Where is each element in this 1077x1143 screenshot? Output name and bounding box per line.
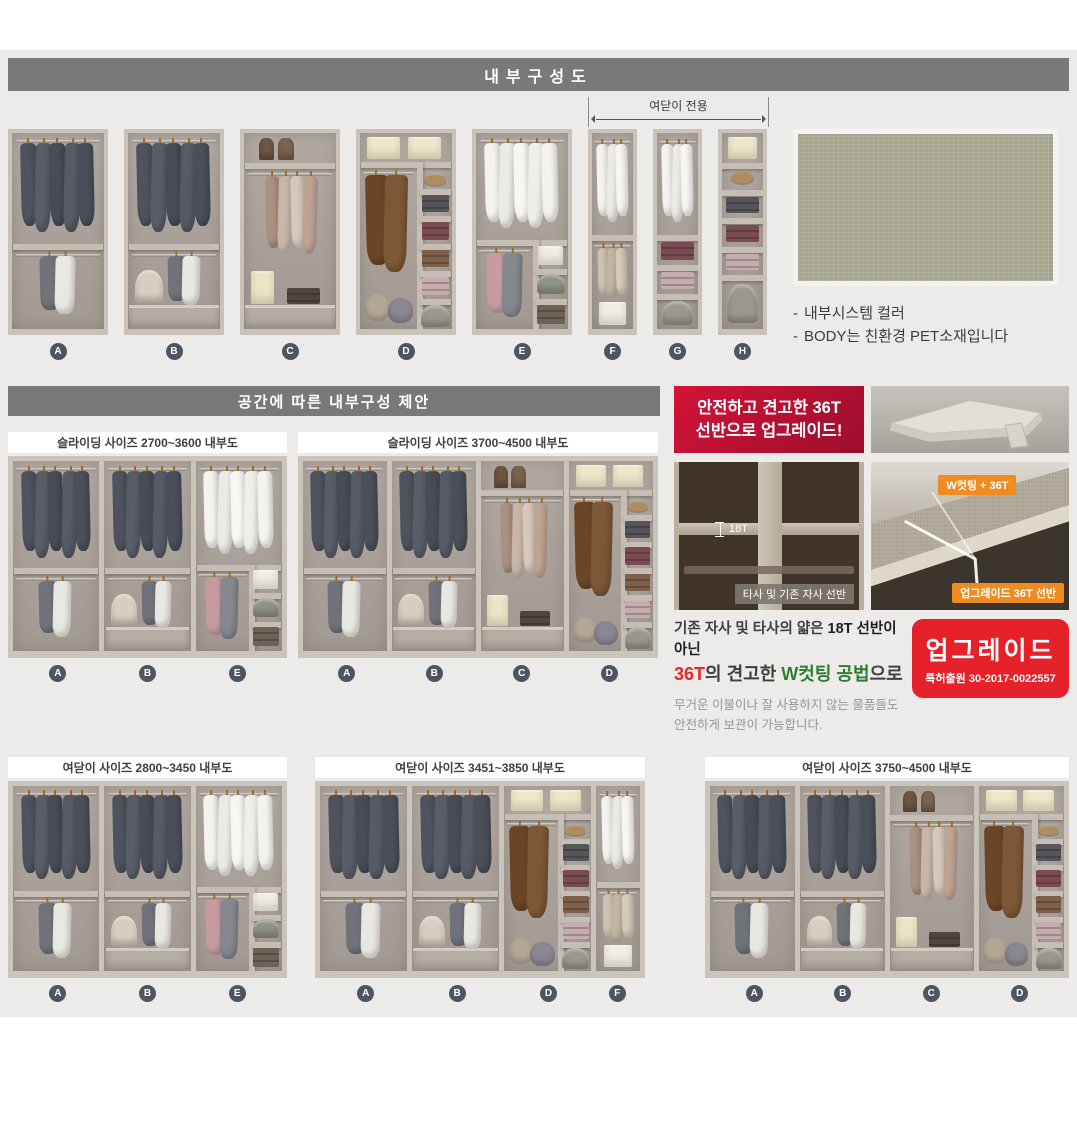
wardrobe-module-B (800, 786, 885, 971)
storage-box (896, 917, 917, 948)
suggestion-title: 공간에 따른 내부구성 제안 (238, 391, 430, 412)
storage-box (1023, 790, 1054, 811)
wardrobe-module-A (303, 461, 387, 651)
module-thumbnails-row (8, 129, 767, 335)
paragraph-small: 무거운 이불이나 잘 사용하지 않는 물품들도 안전하게 보관이 가능합니다. (674, 696, 904, 735)
wardrobe-module-B (124, 129, 224, 335)
round-box-stack (111, 594, 137, 625)
folded-clothes-stack (1036, 844, 1061, 861)
hanging-garment (474, 795, 491, 874)
modules-block: 여닫이 전용 ABCDEFGH (8, 97, 767, 360)
combined-wardrobe-image (315, 781, 645, 978)
letter-slot: E (192, 985, 282, 1002)
folded-clothes-stack (287, 288, 320, 304)
letter-slot: D (356, 343, 456, 360)
hanging-garment (257, 470, 274, 547)
letter-badge-A: A (746, 985, 763, 1002)
letter-slot: B (103, 985, 193, 1002)
shelf-board (420, 299, 450, 305)
combined-wardrobe-image (705, 781, 1069, 978)
hanging-garment (155, 903, 172, 949)
hanging-garment (1001, 826, 1024, 918)
shelf-board (722, 163, 762, 169)
shelf-wedge-illustration (871, 386, 1069, 453)
dash: - (793, 305, 798, 322)
letter-badge-A: A (49, 985, 66, 1002)
text-run: 으로 (870, 664, 903, 684)
letter-slot: A (8, 343, 108, 360)
hanging-garment (451, 470, 468, 551)
storage-box (251, 271, 274, 303)
hanging-garment (526, 826, 550, 918)
letter-badge-C: C (282, 343, 299, 360)
wardrobe-module-B (104, 461, 190, 651)
upgrade-badge: 안전하고 견고한 36T 선반으로 업그레이드! (674, 386, 864, 453)
hanging-garment (182, 256, 201, 305)
panel-label: 여닫이 사이즈 2800~3450 내부도 (8, 757, 287, 778)
folded-clothes-stack (563, 896, 589, 913)
letter-badge-A: A (338, 665, 355, 682)
hanging-garment (770, 795, 787, 874)
letter-slot: B (411, 985, 502, 1002)
folded-clothes-stack (422, 277, 450, 295)
hanging-garment (74, 795, 91, 874)
hanging-garment (341, 580, 360, 637)
letter-slot: H (718, 343, 767, 360)
upgrade-header-row: 안전하고 견고한 36T 선반으로 업그레이드! (674, 386, 1069, 453)
letter-badge-C: C (513, 665, 530, 682)
shelf-board (105, 568, 190, 574)
hanging-garment (220, 577, 240, 639)
letter-slot: B (799, 985, 888, 1002)
storage-box (487, 595, 508, 626)
sliding-panels-row: 슬라이딩 사이즈 2700~3600 내부도ABE슬라이딩 사이즈 3700~4… (8, 432, 660, 682)
upgrade-paragraph-row: 기존 자사 및 타사의 얇은 18T 선반이 아닌 36T의 견고한 W컷팅 공… (674, 619, 1069, 735)
panel-letters-row: ABDF (315, 985, 645, 1002)
folded-clothes-stack (1036, 922, 1061, 939)
wardrobe-module-C (890, 786, 975, 971)
wardrobe-module-H (718, 129, 767, 335)
folded-clothes-stack (726, 254, 759, 271)
hanging-garment (541, 143, 559, 223)
shelf-board (722, 218, 762, 224)
letter-badge-B: B (139, 665, 156, 682)
hanging-garment (622, 894, 635, 939)
hanging-garment (616, 144, 629, 216)
middle-grid: 공간에 따른 내부구성 제안 슬라이딩 사이즈 2700~3600 내부도ABE… (8, 386, 1069, 735)
round-box-stack (253, 598, 279, 617)
hanging-garment (622, 796, 636, 864)
shelf-board (536, 299, 566, 305)
letter-badge-E: E (229, 985, 246, 1002)
wardrobe-module-D (504, 786, 591, 971)
pillow (388, 298, 414, 323)
shelf-board (477, 240, 567, 246)
folded-clothes-stack (661, 272, 694, 289)
letter-slot: E (472, 343, 572, 360)
hanging-garment (74, 470, 91, 551)
letter-slot: F (594, 985, 640, 1002)
wardrobe-module-A (8, 129, 108, 335)
text-run: 의 견고한 (705, 664, 781, 684)
wardrobe-module-A (710, 786, 795, 971)
text-run: W컷팅 공법 (781, 664, 869, 684)
shelf-board (413, 891, 498, 897)
hat (565, 826, 586, 835)
storage-box (367, 137, 400, 160)
suggestion-column: 공간에 따른 내부구성 제안 슬라이딩 사이즈 2700~3600 내부도ABE… (8, 386, 660, 735)
panel-label: 슬라이딩 사이즈 3700~4500 내부도 (298, 432, 658, 453)
letter-slot: A (13, 665, 103, 682)
storage-box (538, 246, 564, 266)
shelf-board (304, 568, 386, 574)
letter-slot: G (653, 343, 702, 360)
bag (494, 466, 508, 488)
folded-clothes-stack (563, 922, 589, 939)
patent-box: 업그레이드 특허출원 30-2017-0022557 (912, 619, 1069, 698)
folded-clothes-stack (726, 197, 759, 214)
drawer (393, 627, 474, 651)
wardrobe-module-B (104, 786, 190, 971)
text-run: 36T (674, 664, 705, 684)
panel-letters-row: ABE (8, 985, 287, 1002)
shelf-board (420, 244, 450, 250)
hat (1039, 826, 1059, 835)
combined-wardrobe-image (298, 456, 658, 658)
badge-line1: 안전하고 견고한 36T (697, 397, 841, 419)
wardrobe-module-G (653, 129, 702, 335)
round-box-stack (135, 270, 163, 302)
combined-wardrobe-image (8, 456, 287, 658)
shelf-board (14, 891, 99, 897)
shelf-board (361, 162, 451, 168)
hat (731, 172, 754, 183)
folded-clothes-stack (625, 547, 650, 564)
shelf-board (505, 814, 590, 820)
thin-shelf-label: 18T (729, 523, 748, 535)
shelf-board (393, 568, 475, 574)
panel-letters-row: ABE (8, 665, 287, 682)
drawer (129, 305, 218, 331)
hanging-garment (590, 502, 613, 596)
upgraded-36t-shelf-tag: 업그레이드 36T 선반 (952, 583, 1064, 603)
storage-box (511, 790, 542, 811)
note-body-pet: BODY는 친환경 PET소재입니다 (804, 328, 1008, 345)
upgrade-paragraph: 기존 자사 및 타사의 얇은 18T 선반이 아닌 36T의 견고한 W컷팅 공… (674, 619, 904, 735)
letter-slot: B (124, 343, 224, 360)
round-box-stack (253, 919, 279, 938)
letter-badge-D: D (398, 343, 415, 360)
letter-slot: A (320, 985, 411, 1002)
hanging-garment (681, 144, 694, 216)
letter-badge-B: B (426, 665, 443, 682)
bag (259, 138, 275, 161)
wardrobe-module-E (196, 786, 282, 971)
round-box-stack (111, 916, 137, 947)
wardrobe-module-A (13, 786, 99, 971)
shelf-board (722, 247, 762, 253)
thick-shelf-photo: W컷팅 + 36T 업그레이드 36T 선반 (871, 462, 1069, 610)
storage-box (986, 790, 1017, 811)
hinged-panels-row: 여닫이 사이즈 2800~3450 내부도ABE여닫이 사이즈 3451~385… (8, 757, 1069, 1002)
storage-box (728, 137, 758, 160)
shelf-board (245, 163, 335, 169)
wardrobe-module-D (979, 786, 1064, 971)
letter-badge-B: B (166, 343, 183, 360)
swatch-notes: -내부시스템 컬러 -BODY는 친환경 PET소재입니다 (793, 302, 1069, 349)
panel-label: 슬라이딩 사이즈 2700~3600 내부도 (8, 432, 287, 453)
wardrobe-module-B (392, 461, 476, 651)
letter-badge-E: E (514, 343, 531, 360)
letter-slot: F (588, 343, 637, 360)
hanging-garment (749, 903, 768, 958)
thin-shelf-photo: 18T 타사 및 기존 자사 선반 (674, 462, 864, 610)
storage-box (613, 465, 643, 487)
letter-badge-D: D (601, 665, 618, 682)
wardrobe-module-C (481, 461, 565, 651)
panel-label: 여닫이 사이즈 3451~3850 내부도 (315, 757, 645, 778)
patent-number: 특허출원 30-2017-0022557 (925, 670, 1055, 686)
section-title-suggestion: 공간에 따른 내부구성 제안 (8, 386, 660, 416)
wardrobe-module-A (13, 461, 99, 651)
hanging-garment (257, 795, 274, 870)
hanging-garment (77, 143, 95, 226)
hanging-garment (54, 256, 75, 315)
storage-box (599, 302, 625, 326)
hanging-garment (220, 899, 240, 960)
folded-clothes-stack (422, 222, 450, 240)
hanging-garment (193, 143, 211, 226)
hanging-rod (479, 250, 531, 253)
hanging-garment (463, 903, 481, 949)
swatch-column: -내부시스템 컬러 -BODY는 친환경 PET소재입니다 (793, 97, 1069, 349)
folded-clothes-stack (563, 844, 589, 861)
compare-row: 18T 타사 및 기존 자사 선반 W컷팅 + 36T 업그레이드 36T 선반 (674, 462, 1069, 610)
letter-badge-G: G (669, 343, 686, 360)
hinged-only-label: 여닫이 전용 (589, 97, 768, 114)
hanging-garment (53, 580, 73, 637)
hat (628, 502, 648, 512)
folded-clothes-stack (929, 932, 960, 947)
folded-clothes-stack (661, 242, 694, 261)
letter-badge-H: H (734, 343, 751, 360)
folded-clothes-stack (625, 574, 650, 591)
folded-clothes-stack (625, 601, 650, 618)
shelf-board (420, 189, 450, 195)
hanging-garment (441, 581, 458, 628)
round-box-stack (1036, 948, 1062, 969)
letter-badge-C: C (923, 985, 940, 1002)
shelf-board (657, 265, 697, 271)
letter-badge-A: A (49, 665, 66, 682)
drawer (482, 627, 563, 651)
letter-badge-F: F (604, 343, 621, 360)
folded-clothes-stack (537, 305, 565, 325)
patent-title: 업그레이드 (925, 631, 1055, 667)
shelf-board (592, 235, 632, 241)
note-line: -내부시스템 컬러 (793, 302, 1069, 325)
round-box-stack (537, 274, 565, 294)
storage-box (253, 570, 277, 589)
letter-slot: A (710, 985, 799, 1002)
note-color: 내부시스템 컬러 (804, 305, 905, 322)
round-box-stack (398, 594, 423, 625)
letter-slot: D (503, 985, 594, 1002)
wardrobe-panel: 슬라이딩 사이즈 3700~4500 내부도ABCD (298, 432, 658, 682)
folded-clothes-stack (422, 250, 450, 268)
letter-badge-B: B (834, 985, 851, 1002)
round-box-stack (421, 305, 450, 328)
hanging-garment (155, 581, 172, 628)
bag (511, 466, 525, 488)
folded-clothes-stack (422, 195, 450, 213)
letter-slot: E (192, 665, 282, 682)
panel-label: 여닫이 사이즈 3750~4500 내부도 (705, 757, 1069, 778)
shelf-board (722, 190, 762, 196)
wardrobe-panel: 여닫이 사이즈 2800~3450 내부도ABE (8, 757, 287, 1002)
shelf-board (321, 891, 406, 897)
text-run: 기존 자사 및 타사의 얇은 (674, 621, 828, 637)
shelf-board (13, 244, 103, 250)
wardrobe-module-F (588, 129, 637, 335)
hinged-only-bracket: 여닫이 전용 (588, 97, 769, 127)
badge-line2: 선반으로 업그레이드! (696, 420, 843, 442)
shelf-board (14, 568, 99, 574)
shelf-board (597, 882, 640, 888)
wardrobe-module-C (240, 129, 340, 335)
wardrobe-module-A (320, 786, 407, 971)
round-box-stack (662, 301, 693, 326)
hanging-garment (382, 795, 399, 874)
hanging-garment (860, 795, 877, 874)
section-title-interior-composition: 내부구성도 (8, 58, 1069, 91)
hanging-garment (616, 248, 628, 295)
shelf-board (890, 815, 973, 821)
wardrobe-module-F (596, 786, 640, 971)
drawer (106, 948, 190, 971)
storage-box (408, 137, 441, 160)
letter-slot: C (887, 985, 976, 1002)
thin-shelf-caption: 타사 및 기존 자사 선반 (735, 584, 854, 604)
letter-badge-E: E (229, 665, 246, 682)
pillow (1005, 942, 1029, 966)
drawer (245, 305, 334, 331)
round-box-stack (727, 284, 758, 323)
folded-clothes-stack (1036, 870, 1061, 887)
shelf-board (481, 490, 563, 496)
hanging-garment (943, 827, 958, 901)
wardrobe-module-D (356, 129, 456, 335)
hanging-garment (534, 503, 549, 579)
letter-slot: B (103, 665, 193, 682)
hanging-garment (849, 903, 866, 949)
paragraph-line2: 36T의 견고한 W컷팅 공법으로 (674, 663, 904, 686)
letter-badge-A: A (50, 343, 67, 360)
shelf-board (570, 490, 652, 496)
measure-icon (715, 522, 724, 537)
folded-clothes-stack (253, 948, 279, 967)
pillow (983, 938, 1007, 964)
thin-shelf-measure: 18T (715, 522, 748, 537)
bag (278, 138, 294, 161)
letter-slot: D (976, 985, 1065, 1002)
letter-badge-D: D (540, 985, 557, 1002)
shelf-board (722, 275, 762, 281)
wardrobe-panel: 슬라이딩 사이즈 2700~3600 내부도ABE (8, 432, 287, 682)
pillow (509, 938, 533, 964)
storage-box (576, 465, 606, 487)
drawer (413, 948, 498, 971)
combined-wardrobe-image (8, 781, 287, 978)
round-box-stack (562, 948, 589, 969)
drawer (801, 948, 883, 971)
shelf-board (105, 891, 190, 897)
wardrobe-panel: 여닫이 사이즈 3451~3850 내부도ABDF (315, 757, 645, 1002)
shelf-board (129, 244, 219, 250)
bag (903, 791, 917, 812)
folded-clothes-stack (726, 225, 759, 242)
module-letters-row: ABCDEFGH (8, 343, 767, 360)
letter-slot: A (13, 985, 103, 1002)
pillow (365, 294, 391, 321)
letter-badge-B: B (139, 985, 156, 1002)
round-box-stack (807, 916, 832, 947)
hanging-garment (166, 795, 183, 874)
storage-box (550, 790, 581, 811)
hanging-garment (166, 470, 183, 551)
shelf-piece-photo (871, 386, 1069, 453)
folded-clothes-stack (1036, 896, 1061, 913)
hanging-garment (502, 252, 523, 316)
round-box-stack (625, 627, 651, 649)
pillow (573, 617, 596, 644)
folded-clothes-stack (520, 611, 550, 626)
pillow (530, 942, 554, 966)
panel-letters-row: ABCD (298, 665, 658, 682)
shelf-board (657, 235, 697, 241)
folded-clothes-stack (563, 870, 589, 887)
wardrobe-module-B (412, 786, 499, 971)
double-arrow-icon (589, 115, 768, 123)
drawer (891, 948, 973, 971)
folded-clothes-stack (625, 521, 650, 538)
storage-box (604, 945, 632, 967)
letter-slot: A (303, 665, 391, 682)
letter-slot: C (478, 665, 566, 682)
bag (921, 791, 935, 812)
storage-box (253, 893, 277, 912)
letter-slot: D (566, 665, 654, 682)
shelf-board (711, 891, 794, 897)
letter-slot: B (391, 665, 479, 682)
small-line1: 무거운 이불이나 잘 사용하지 않는 물품들도 (674, 696, 904, 715)
shelf-board (801, 891, 884, 897)
paragraph-line1: 기존 자사 및 타사의 얇은 18T 선반이 아닌 (674, 619, 904, 661)
hanging-garment (360, 903, 380, 958)
folded-clothes-stack (253, 627, 279, 646)
page-title: 내부구성도 (484, 63, 593, 87)
upgrade-column: 안전하고 견고한 36T 선반으로 업그레이드! (674, 386, 1069, 735)
letter-badge-F: F (609, 985, 626, 1002)
wardrobe-module-E (472, 129, 572, 335)
wardrobe-module-E (196, 461, 282, 651)
hanging-garment (362, 470, 379, 551)
drawer (106, 627, 190, 651)
panel-letters-row: ABCD (705, 985, 1069, 1002)
letter-badge-B: B (449, 985, 466, 1002)
small-line2: 안전하게 보관이 가능합니다. (674, 716, 904, 735)
wardrobe-panel: 여닫이 사이즈 3750~4500 내부도ABCD (705, 757, 1069, 1002)
